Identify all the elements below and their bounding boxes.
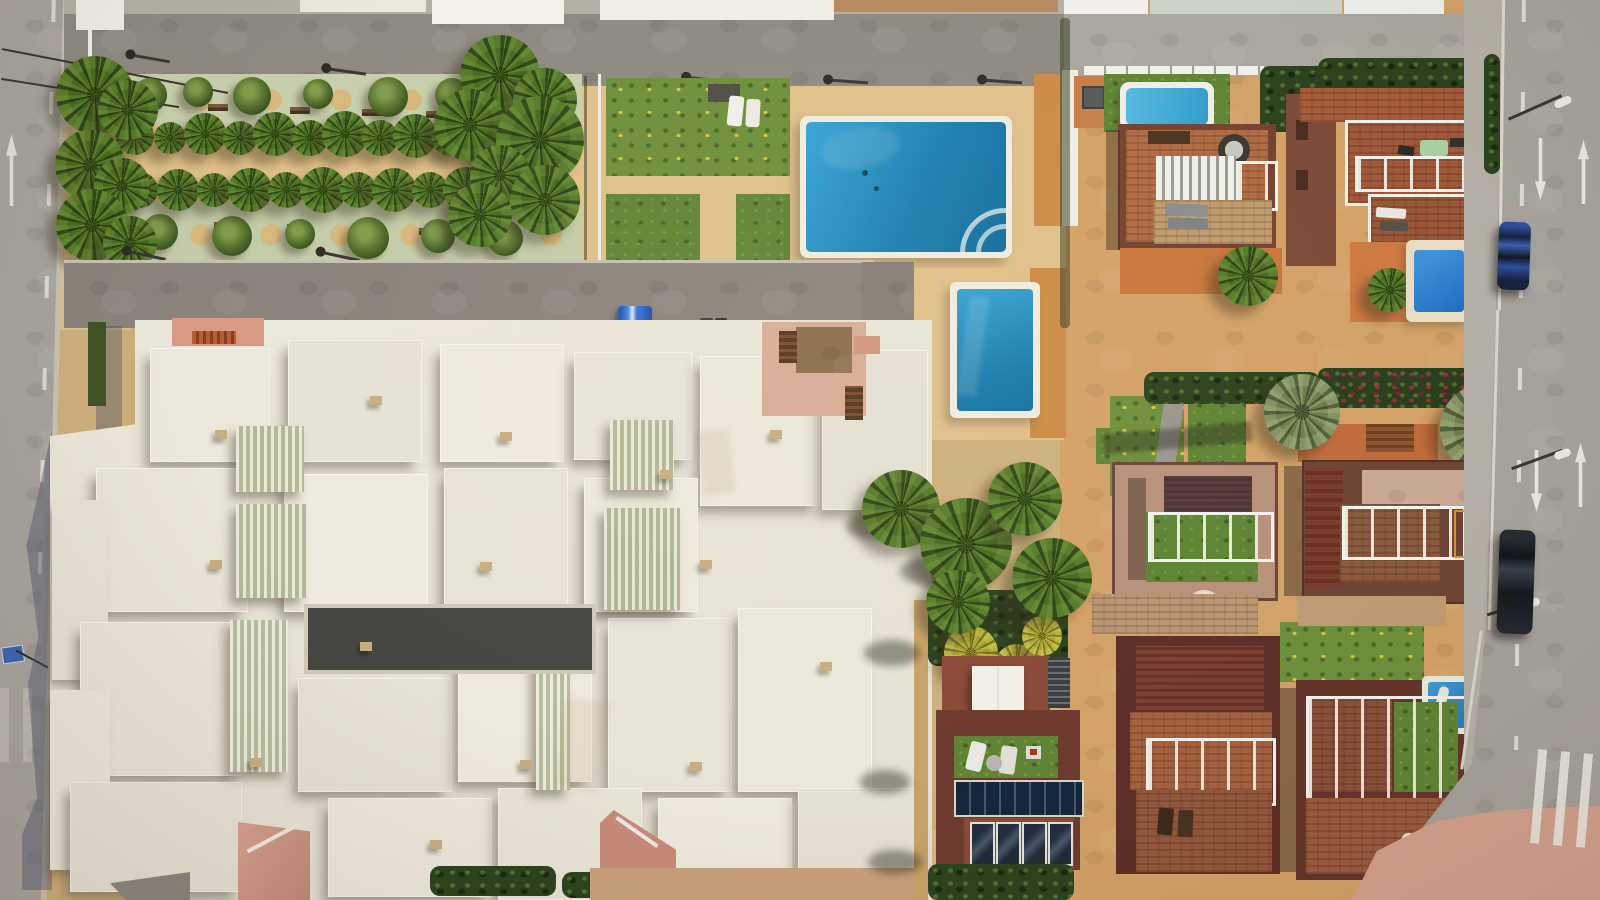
aerial-photo-residential-complex [0, 0, 1600, 900]
light-vignette [0, 0, 1600, 900]
